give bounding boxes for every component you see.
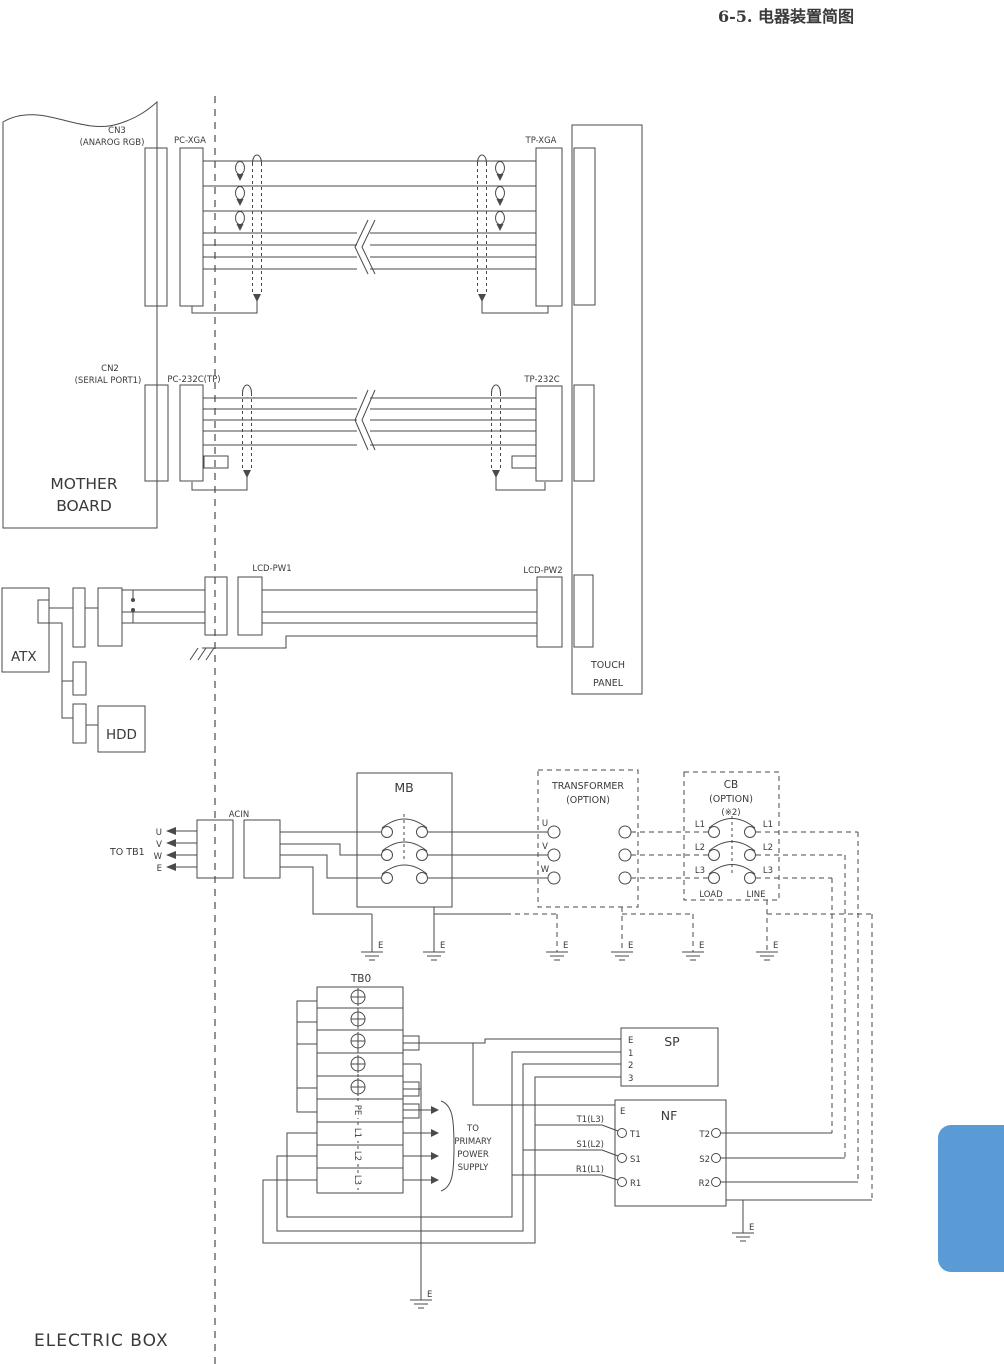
cb-l3-left-label: L3 bbox=[695, 866, 705, 876]
nf-r2-label: R2 bbox=[699, 1179, 710, 1189]
primary-label-1: TO bbox=[466, 1124, 479, 1134]
cn2-label: CN2 bbox=[101, 364, 119, 374]
tp-232c-label: TP-232C bbox=[523, 375, 559, 385]
nf-s1-label: S1 bbox=[630, 1155, 641, 1165]
nf-r1-source-label: R1(L1) bbox=[576, 1165, 604, 1175]
transformer-v-label: V bbox=[542, 842, 548, 852]
shield-drain-right-232c bbox=[492, 385, 546, 490]
mb-label: MB bbox=[394, 780, 413, 795]
shield-drain-left bbox=[192, 155, 262, 313]
phase-w-label: W bbox=[154, 852, 163, 862]
cb-load-label: LOAD bbox=[699, 890, 723, 900]
to-tb1-label: TO TB1 bbox=[109, 847, 145, 858]
cn2-sub-label: (SERIAL PORT1) bbox=[75, 376, 142, 386]
lcd-pw2-label: LCD-PW2 bbox=[523, 566, 562, 576]
tb0-label: TB0 bbox=[350, 973, 371, 985]
serial-cable-section: PC-232C(TP) TP-232C bbox=[145, 375, 562, 490]
transformer-block: TRANSFORMER (OPTION) U V W bbox=[538, 770, 708, 907]
electric-box-label: ELECTRIC BOX bbox=[34, 1331, 169, 1351]
mb-breaker-block: MB bbox=[357, 773, 548, 907]
primary-supply-callout: TO PRIMARY POWER SUPPLY bbox=[403, 1101, 492, 1191]
cb-l1-right-label: L1 bbox=[763, 820, 773, 830]
tb0-l3-label: L3 bbox=[352, 1175, 362, 1185]
chassis-ground-icon bbox=[190, 648, 214, 660]
shield-drain-right bbox=[478, 155, 549, 313]
touch-panel-label-2: PANEL bbox=[593, 678, 624, 689]
tb0-screw-terminals bbox=[351, 988, 365, 1096]
sp-label: SP bbox=[664, 1034, 680, 1049]
primary-label-3: POWER bbox=[457, 1150, 489, 1160]
cb-l2-left-label: L2 bbox=[695, 843, 705, 853]
cb-l3-right-label: L3 bbox=[763, 866, 773, 876]
atx-label: ATX bbox=[11, 649, 37, 665]
blue-bookmark-tab[interactable] bbox=[938, 1125, 1004, 1272]
schematic-page: 6-5. 电器装置简图 MOTHER BOARD CN3 (ANAROG RGB… bbox=[0, 0, 1004, 1364]
ground-e-5: E bbox=[699, 941, 704, 951]
nf-r1-label: R1 bbox=[630, 1179, 641, 1189]
sp-3-label: 3 bbox=[628, 1074, 633, 1084]
phase-v-label: V bbox=[156, 840, 162, 850]
pc-xga-label: PC-XGA bbox=[174, 136, 206, 146]
nf-s1-source-label: S1(L2) bbox=[576, 1140, 604, 1150]
ground-e-2: E bbox=[440, 941, 445, 951]
cb-label-3: (※2) bbox=[721, 808, 740, 818]
cn3-sub-label: (ANAROG RGB) bbox=[80, 138, 145, 148]
acin-block: ACIN TO TB1 U V W E bbox=[109, 810, 381, 914]
touch-panel-block: TOUCH PANEL bbox=[572, 125, 642, 694]
lcd-power-section: LCD-PW1 LCD-PW2 bbox=[122, 564, 563, 660]
pc-232c-label: PC-232C(TP) bbox=[167, 375, 220, 385]
tp-xga-label: TP-XGA bbox=[525, 136, 557, 146]
nf-block: NF E T1 S1 R1 T2 S2 R2 E bbox=[615, 832, 872, 1241]
phase-e-label: E bbox=[157, 864, 162, 874]
cb-l1-left-label: L1 bbox=[695, 820, 705, 830]
touch-panel-label-1: TOUCH bbox=[590, 660, 625, 671]
phase-u-label: U bbox=[156, 828, 162, 838]
page-title: 6-5. 电器装置简图 bbox=[718, 7, 854, 26]
motherboard-label-1: MOTHER bbox=[50, 475, 117, 493]
cb-label-1: CB bbox=[724, 779, 739, 791]
tb0-l1-label: L1 bbox=[352, 1128, 362, 1138]
cb-l2-right-label: L2 bbox=[763, 843, 773, 853]
nf-s2-label: S2 bbox=[699, 1155, 710, 1165]
tb0-block: TB0 PE L1 L2 L3 bbox=[297, 973, 419, 1193]
nf-e-label: E bbox=[620, 1107, 625, 1117]
primary-label-2: PRIMARY bbox=[454, 1137, 492, 1147]
xga-cable-section: PC-XGA TP-XGA bbox=[145, 136, 562, 313]
brace bbox=[441, 1101, 454, 1191]
ground-e-4: E bbox=[628, 941, 633, 951]
transformer-label-2: (OPTION) bbox=[566, 795, 610, 806]
motherboard-block: MOTHER BOARD CN3 (ANAROG RGB) CN2 (SERIA… bbox=[3, 102, 157, 528]
cn3-label: CN3 bbox=[108, 126, 126, 136]
ground-e-8: E bbox=[427, 1290, 432, 1300]
lcd-pw1-label: LCD-PW1 bbox=[252, 564, 291, 574]
nf-t1-source-label: T1(L3) bbox=[576, 1115, 604, 1125]
ground-e-6: E bbox=[773, 941, 778, 951]
twist-balloons-left bbox=[236, 162, 245, 232]
cb-label-2: (OPTION) bbox=[709, 794, 753, 805]
shield-drain-left-232c bbox=[192, 385, 252, 490]
atx-hdd-block: ATX HDD bbox=[2, 588, 145, 752]
sp-2-label: 2 bbox=[628, 1061, 633, 1071]
ground-e-7: E bbox=[749, 1223, 754, 1233]
sp-block: SP E 1 2 3 bbox=[621, 1028, 718, 1086]
ground-row: E E E E E E bbox=[361, 900, 872, 960]
ground-e-3: E bbox=[563, 941, 568, 951]
transformer-w-label: W bbox=[541, 865, 550, 875]
twist-balloons-right bbox=[496, 162, 505, 232]
primary-label-4: SUPPLY bbox=[458, 1163, 489, 1173]
transformer-u-label: U bbox=[542, 819, 548, 829]
tb0-l2-label: L2 bbox=[352, 1151, 362, 1161]
sp-1-label: 1 bbox=[628, 1049, 633, 1059]
sp-e-label: E bbox=[628, 1036, 633, 1046]
hdd-label: HDD bbox=[106, 727, 137, 743]
transformer-label-1: TRANSFORMER bbox=[551, 781, 624, 792]
acin-label: ACIN bbox=[229, 810, 249, 820]
nf-t2-label: T2 bbox=[698, 1130, 710, 1140]
ground-e-1: E bbox=[378, 941, 383, 951]
nf-label: NF bbox=[661, 1108, 678, 1123]
motherboard-label-2: BOARD bbox=[56, 497, 112, 515]
nf-t1-label: T1 bbox=[629, 1130, 641, 1140]
tb0-pe-label: PE bbox=[352, 1105, 362, 1116]
cb-line-label: LINE bbox=[747, 890, 766, 900]
